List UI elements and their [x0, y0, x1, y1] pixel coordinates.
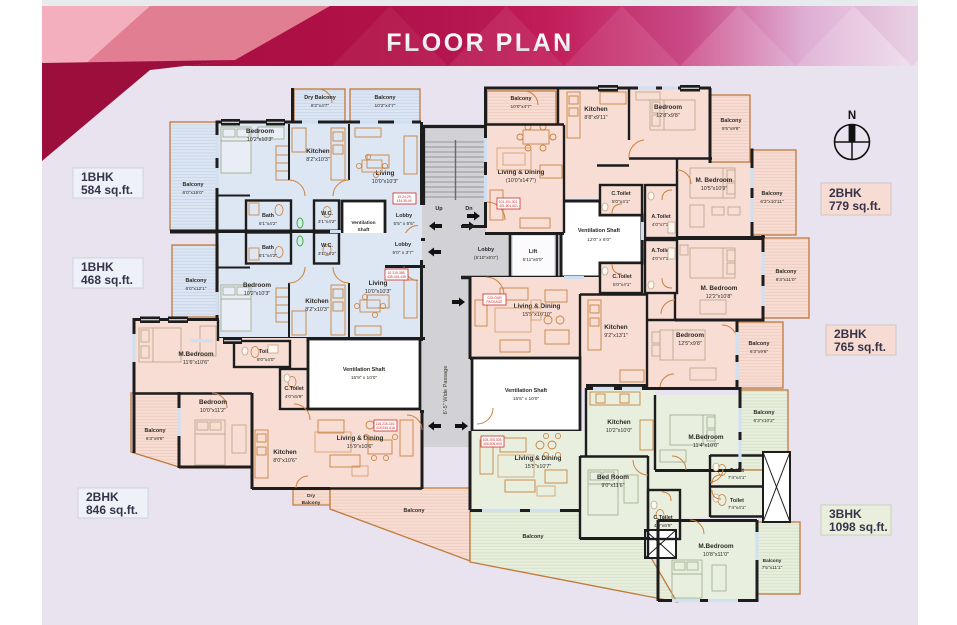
svg-text:10'0"x10'3": 10'0"x10'3" — [372, 179, 399, 185]
svg-text:15'5"x10'10": 15'5"x10'10" — [522, 312, 552, 318]
svg-text:405,505,605: 405,505,605 — [483, 442, 502, 446]
svg-text:6'1"x4'2": 6'1"x4'2" — [259, 221, 278, 227]
svg-text:Balcony: Balcony — [754, 410, 775, 416]
svg-text:Kitchen: Kitchen — [273, 449, 297, 456]
svg-text:6'3"x10'2": 6'3"x10'2" — [754, 418, 775, 424]
svg-text:Balcony: Balcony — [762, 191, 783, 197]
svg-text:765 sq.ft.: 765 sq.ft. — [834, 340, 886, 354]
svg-text:Dn: Dn — [465, 206, 472, 212]
svg-text:15'5" x 10'0": 15'5" x 10'0" — [513, 396, 540, 402]
svg-text:12'5"x9'8": 12'5"x9'8" — [678, 341, 702, 347]
svg-text:6'0"x12'1": 6'0"x12'1" — [186, 286, 207, 292]
svg-text:2BHK: 2BHK — [834, 327, 867, 341]
svg-text:1098 sq.ft.: 1098 sq.ft. — [829, 520, 888, 534]
svg-text:10'0"x11'2": 10'0"x11'2" — [200, 408, 226, 414]
svg-text:Bedroom: Bedroom — [676, 332, 704, 339]
svg-text:5'5"x9'8": 5'5"x9'8" — [722, 126, 741, 132]
svg-text:9'2"x13'1": 9'2"x13'1" — [604, 333, 628, 339]
svg-text:416,516,616: 416,516,616 — [376, 426, 395, 430]
svg-text:(5'10"x6'0"): (5'10"x6'0") — [474, 255, 499, 261]
svg-text:5'5" x 5'5": 5'5" x 5'5" — [394, 221, 415, 227]
svg-text:10'5"x10'9": 10'5"x10'9" — [701, 186, 728, 192]
svg-text:Living & Dining: Living & Dining — [514, 303, 561, 310]
svg-text:10'0"x4'7": 10'0"x4'7" — [511, 104, 532, 110]
svg-text:3'1"x4'2": 3'1"x4'2" — [318, 219, 337, 225]
svg-text:468 sq.ft.: 468 sq.ft. — [81, 273, 133, 287]
svg-text:Toilet: Toilet — [730, 468, 744, 474]
svg-text:Ventilation Shaft: Ventilation Shaft — [578, 228, 620, 234]
svg-text:Living & Dining: Living & Dining — [337, 435, 384, 442]
svg-text:Living & Dining: Living & Dining — [515, 455, 562, 462]
svg-text:8'0"x4'0": 8'0"x4'0" — [257, 357, 276, 363]
svg-text:Lift: Lift — [529, 249, 538, 255]
svg-text:FLOOR PLAN: FLOOR PLAN — [386, 29, 574, 57]
svg-text:C.Toilet: C.Toilet — [653, 515, 673, 521]
svg-text:M.Bedroom: M.Bedroom — [688, 434, 723, 441]
svg-text:12'8"x9'8": 12'8"x9'8" — [656, 113, 680, 119]
svg-text:4'0"x6'9": 4'0"x6'9" — [654, 523, 673, 529]
svg-text:Kitchen: Kitchen — [607, 419, 631, 426]
svg-text:Balcony: Balcony — [145, 428, 166, 434]
svg-text:11'6"x10'6": 11'6"x10'6" — [183, 360, 209, 366]
svg-text:Balcony: Balcony — [302, 500, 321, 506]
svg-text:6'3"x9'6": 6'3"x9'6" — [750, 349, 769, 355]
svg-text:10'2"x10'3": 10'2"x10'3" — [244, 291, 271, 297]
svg-text:Balcony: Balcony — [183, 182, 204, 188]
svg-text:Lobby: Lobby — [396, 213, 412, 219]
svg-text:584 sq.ft.: 584 sq.ft. — [81, 183, 133, 197]
svg-text:Kitchen: Kitchen — [305, 298, 329, 305]
svg-text:5'11"x6'0": 5'11"x6'0" — [523, 257, 544, 263]
svg-text:1BHK: 1BHK — [81, 170, 114, 184]
svg-text:Balcony: Balcony — [375, 95, 396, 101]
svg-text:7'4"x4'1": 7'4"x4'1" — [728, 475, 747, 481]
svg-text:A.Toilet: A.Toilet — [651, 214, 671, 220]
svg-text:8'2"x10'3": 8'2"x10'3" — [305, 307, 329, 313]
svg-text:8'8"x9'11": 8'8"x9'11" — [584, 115, 607, 121]
svg-text:12'0" x 6'0": 12'0" x 6'0" — [587, 237, 611, 243]
svg-text:N: N — [848, 110, 856, 122]
svg-text:12'2"x10'8": 12'2"x10'8" — [706, 294, 733, 300]
svg-text:10'2"x10'0": 10'2"x10'0" — [606, 428, 633, 434]
svg-text:3'1"x4'2": 3'1"x4'2" — [318, 251, 337, 257]
svg-text:Lobby: Lobby — [478, 247, 494, 253]
svg-text:Living: Living — [369, 280, 388, 287]
svg-text:9'0"x11'6": 9'0"x11'6" — [601, 483, 624, 489]
svg-text:Lobby: Lobby — [395, 242, 411, 248]
svg-text:Balcony: Balcony — [776, 269, 797, 275]
svg-text:Kitchen: Kitchen — [584, 106, 608, 113]
svg-text:8'2"x4'7": 8'2"x4'7" — [311, 103, 330, 109]
svg-text:Ventilation Shaft: Ventilation Shaft — [505, 388, 547, 394]
svg-text:435,315,435: 435,315,435 — [387, 275, 406, 279]
svg-text:PACKAGE: PACKAGE — [486, 300, 503, 304]
svg-text:(10'0"x14'7"): (10'0"x14'7") — [506, 178, 536, 184]
svg-text:Balcony: Balcony — [186, 278, 207, 284]
svg-text:6'-5" Wide Passage: 6'-5" Wide Passage — [443, 366, 449, 415]
svg-text:8'0"x10'6": 8'0"x10'6" — [273, 458, 297, 464]
svg-text:Balcony: Balcony — [749, 341, 770, 347]
svg-text:6'1"x4'2": 6'1"x4'2" — [259, 253, 278, 259]
svg-text:10'8"x11'0": 10'8"x11'0" — [703, 552, 729, 558]
svg-text:Bedroom: Bedroom — [243, 282, 271, 289]
svg-text:Bath: Bath — [262, 245, 274, 251]
svg-text:C.Toilet: C.Toilet — [284, 386, 304, 392]
svg-text:6'3"x11'0": 6'3"x11'0" — [776, 277, 797, 283]
svg-text:6'3"x9'8": 6'3"x9'8" — [146, 436, 165, 442]
svg-text:C.Toilet: C.Toilet — [611, 191, 631, 197]
svg-text:M.Bedroom: M.Bedroom — [698, 543, 733, 550]
svg-text:Dry Balcony: Dry Balcony — [304, 95, 335, 101]
svg-text:6'0"x15'0": 6'0"x15'0" — [183, 190, 204, 196]
svg-text:W.C.: W.C. — [321, 243, 333, 249]
svg-text:5'0"x4'1": 5'0"x4'1" — [613, 282, 632, 288]
svg-text:6'3"x10'11": 6'3"x10'11" — [760, 199, 784, 205]
svg-text:846 sq.ft.: 846 sq.ft. — [86, 503, 138, 517]
svg-text:10'0"x10'3": 10'0"x10'3" — [365, 289, 392, 295]
svg-text:7'5"x11'1": 7'5"x11'1" — [762, 565, 783, 571]
svg-text:15'5"x10'7": 15'5"x10'7" — [525, 464, 552, 470]
svg-text:5'0" x 3'7": 5'0" x 3'7" — [393, 250, 414, 256]
svg-text:Shaft: Shaft — [358, 227, 370, 233]
svg-text:7'4"x4'1": 7'4"x4'1" — [728, 505, 747, 511]
svg-text:8'2"x10'3": 8'2"x10'3" — [306, 157, 330, 163]
svg-text:779 sq.ft.: 779 sq.ft. — [829, 199, 881, 213]
svg-text:434,39,49,: 434,39,49, — [396, 199, 412, 203]
svg-text:Bedroom: Bedroom — [246, 128, 274, 135]
svg-text:Dry: Dry — [307, 493, 315, 499]
svg-text:M.Bedroom: M.Bedroom — [178, 351, 213, 358]
svg-text:Kitchen: Kitchen — [306, 148, 330, 155]
svg-text:Bed Room: Bed Room — [597, 474, 629, 481]
svg-text:Up: Up — [435, 206, 443, 212]
svg-text:W.C.: W.C. — [321, 211, 333, 217]
svg-text:Toilet: Toilet — [730, 498, 744, 504]
svg-text:1BHK: 1BHK — [81, 260, 114, 274]
svg-text:10'2"x10'3": 10'2"x10'3" — [247, 137, 274, 143]
svg-text:2BHK: 2BHK — [829, 186, 862, 200]
svg-text:C.Toilet: C.Toilet — [612, 274, 632, 280]
svg-text:2BHK: 2BHK — [86, 490, 119, 504]
svg-text:15'9" x 10'0": 15'9" x 10'0" — [351, 375, 378, 381]
svg-text:Balcony: Balcony — [511, 96, 532, 102]
svg-text:M. Bedroom: M. Bedroom — [696, 177, 733, 184]
svg-text:3BHK: 3BHK — [829, 507, 862, 521]
svg-text:11'4"x10'0": 11'4"x10'0" — [693, 443, 719, 449]
svg-text:Bedroom: Bedroom — [654, 104, 682, 111]
svg-text:Kitchen: Kitchen — [604, 324, 628, 331]
svg-text:Ventilation Shaft: Ventilation Shaft — [343, 367, 385, 373]
svg-text:4'0"x5'9": 4'0"x5'9" — [285, 394, 304, 400]
svg-text:Balcony: Balcony — [763, 558, 782, 564]
svg-text:Balcony: Balcony — [721, 118, 742, 124]
svg-text:Balcony: Balcony — [404, 508, 425, 514]
svg-text:Balcony: Balcony — [523, 534, 544, 540]
svg-text:401,501,601: 401,501,601 — [499, 204, 518, 208]
svg-text:Ventilation: Ventilation — [351, 220, 375, 226]
svg-text:Bedroom: Bedroom — [199, 399, 227, 406]
svg-text:10'2"x4'7": 10'2"x4'7" — [375, 103, 396, 109]
svg-text:Bath: Bath — [262, 213, 274, 219]
svg-text:M. Bedroom: M. Bedroom — [701, 285, 738, 292]
